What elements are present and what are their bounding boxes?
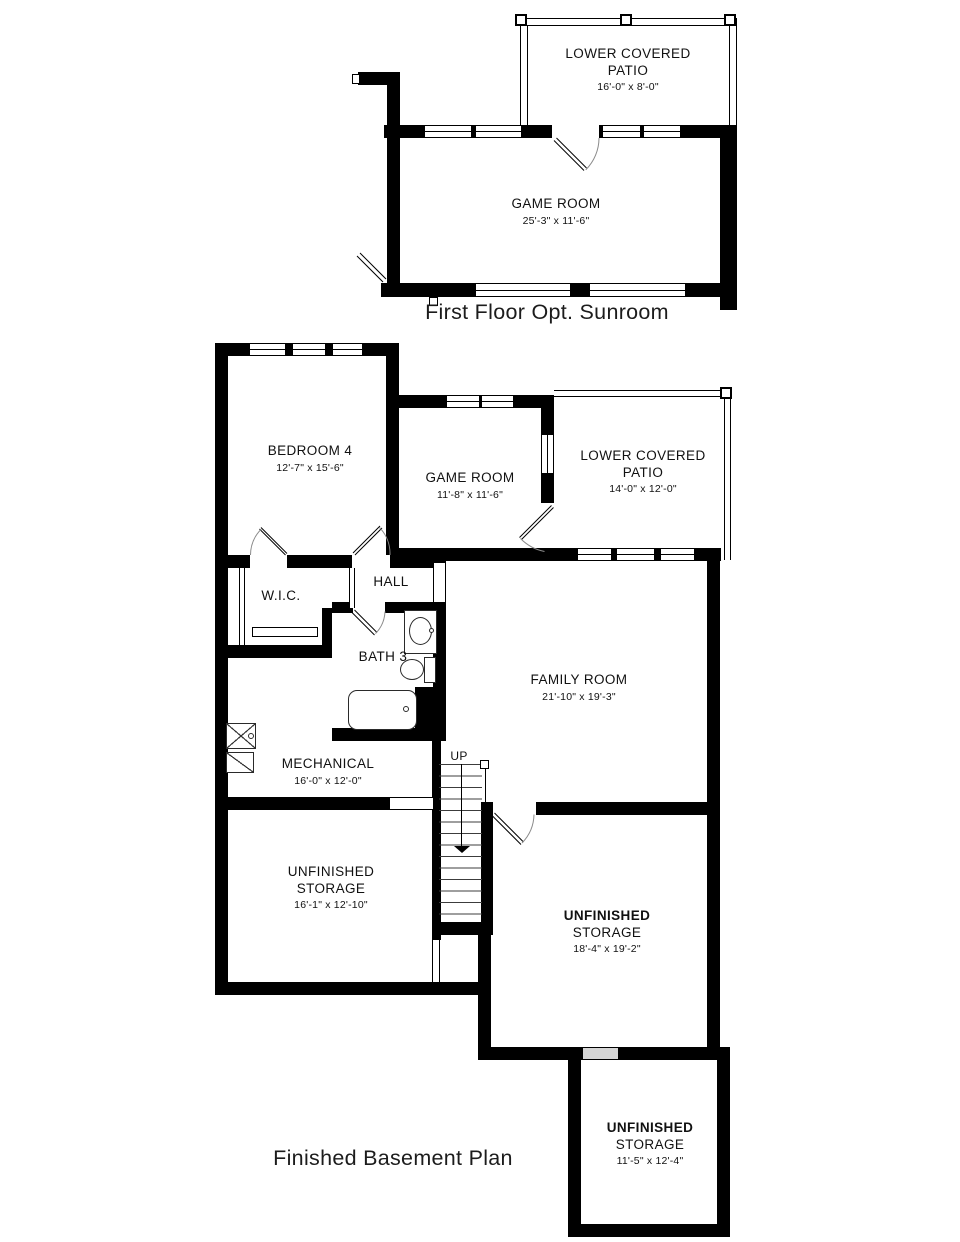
door-swing (250, 518, 288, 556)
room-dims: 21'-10" x 19'-3" (531, 690, 628, 704)
window (578, 548, 611, 561)
room-label-mechanical: MECHANICAL 16'-0" x 12'-0" (282, 756, 375, 788)
room-name: STORAGE (607, 1137, 694, 1154)
room-label-storage-right: UNFINISHED STORAGE 18'-4" x 19'-2" (564, 908, 651, 956)
wall-end-notch (352, 74, 360, 84)
window (617, 548, 654, 561)
room-dims: 14'-0" x 12'-0" (580, 482, 705, 496)
door-leaf (356, 252, 388, 284)
wall-segment (568, 1060, 581, 1237)
wall-segment (720, 125, 737, 310)
room-label-patio: LOWER COVERED PATIO 16'-0" x 8'-0" (565, 46, 690, 94)
wall-segment (215, 982, 491, 995)
mechanical-unit-valve (248, 733, 254, 739)
door-swing (554, 138, 600, 184)
room-label-patio: LOWER COVERED PATIO 14'-0" x 12'-0" (580, 448, 705, 496)
room-dims: 11'-5" x 12'-4" (607, 1154, 694, 1168)
wall-opening (583, 1047, 618, 1060)
door-swing (507, 505, 554, 552)
wall-segment (387, 72, 400, 297)
thin-wall (239, 568, 245, 645)
window (476, 283, 570, 297)
window (293, 343, 325, 356)
stair-direction-arrow (454, 846, 470, 853)
room-dims: 25'-3" x 11'-6" (511, 214, 600, 228)
room-label-storage-bottom: UNFINISHED STORAGE 11'-5" x 12'-4" (607, 1120, 694, 1168)
wall-segment (215, 343, 228, 995)
wall-segment (215, 645, 325, 658)
patio-post (620, 14, 632, 26)
room-dims: 16'-0" x 8'-0" (565, 80, 690, 94)
door-swing (492, 813, 536, 857)
room-label-game-room: GAME ROOM 25'-3" x 11'-6" (511, 196, 600, 228)
room-name: GAME ROOM (511, 196, 600, 213)
window (590, 283, 685, 297)
room-label-hall: HALL (373, 574, 408, 591)
room-label-family-room: FAMILY ROOM 21'-10" x 19'-3" (531, 672, 628, 704)
wall-segment (478, 935, 491, 1060)
room-name: LOWER COVERED (565, 46, 690, 63)
room-label-wic: W.I.C. (261, 588, 300, 605)
room-name: UNFINISHED (288, 864, 375, 881)
plan-caption-basement: Finished Basement Plan (273, 1146, 513, 1171)
room-label-game-room: GAME ROOM 11'-8" x 11'-6" (425, 470, 514, 502)
wall-segment (717, 1047, 730, 1237)
floor-plan-canvas: LOWER COVERED PATIO 16'-0" x 8'-0" GAME … (0, 0, 960, 1242)
closet-shelf (252, 627, 318, 637)
room-name: BEDROOM 4 (268, 443, 353, 460)
window (541, 435, 554, 473)
room-dims: 16'-0" x 12'-0" (282, 774, 375, 788)
stair-newel-post (480, 760, 489, 769)
room-dims: 11'-8" x 11'-6" (425, 488, 514, 502)
window (603, 125, 640, 138)
room-name: UNFINISHED (607, 1120, 694, 1137)
plan-caption-first-floor: First Floor Opt. Sunroom (425, 300, 669, 325)
room-label-bedroom4: BEDROOM 4 12'-7" x 15'-6" (268, 443, 353, 475)
door-opening (250, 555, 287, 568)
sink-faucet (429, 628, 434, 633)
room-label-storage-left: UNFINISHED STORAGE 16'-1" x 12'-10" (288, 864, 375, 912)
toilet-tank (424, 657, 436, 683)
room-dims: 18'-4" x 19'-2" (564, 942, 651, 956)
window (644, 125, 680, 138)
patio-post (724, 14, 736, 26)
mechanical-unit (226, 752, 254, 773)
room-name: PATIO (565, 63, 690, 80)
thin-wall (349, 568, 355, 608)
window (661, 548, 694, 561)
wall-segment (322, 608, 332, 658)
room-dims: 12'-7" x 15'-6" (268, 461, 353, 475)
patio-post (515, 14, 527, 26)
door-swing (352, 610, 387, 645)
room-name: PATIO (580, 465, 705, 482)
window (447, 395, 479, 408)
room-name: LOWER COVERED (580, 448, 705, 465)
tub-drain (403, 706, 409, 712)
wall-segment (399, 555, 433, 568)
door-opening (552, 125, 599, 138)
room-name: UNFINISHED (564, 908, 651, 925)
window (425, 125, 471, 138)
wall-segment (568, 1224, 730, 1237)
stairs-up-label: UP (450, 749, 467, 763)
thin-wall (432, 940, 440, 982)
window (476, 125, 521, 138)
door-opening (352, 555, 390, 568)
window (333, 343, 362, 356)
room-dims: 16'-1" x 12'-10" (288, 898, 375, 912)
room-name: MECHANICAL (282, 756, 375, 773)
patio-post (720, 387, 732, 399)
room-label-bath3: BATH 3 (359, 649, 408, 666)
stair-direction-line (461, 764, 462, 848)
door-swing (352, 517, 390, 555)
cased-opening (433, 563, 446, 602)
room-name: FAMILY ROOM (531, 672, 628, 689)
room-name: STORAGE (564, 925, 651, 942)
cased-opening (390, 797, 433, 810)
window (250, 343, 285, 356)
stair-handrail (485, 765, 486, 807)
window (482, 395, 513, 408)
room-name: STORAGE (288, 881, 375, 898)
room-name: GAME ROOM (425, 470, 514, 487)
